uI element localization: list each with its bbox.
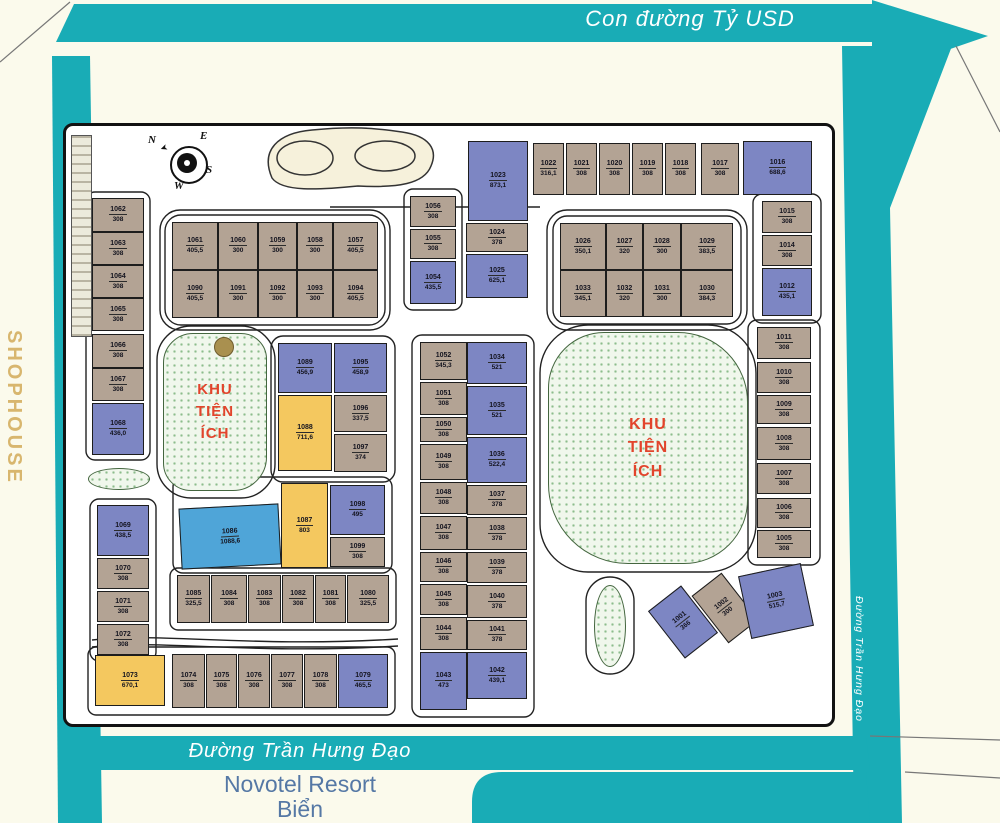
lot-number: 1030 — [698, 285, 716, 294]
lot-1025: 1025625,1 — [466, 254, 528, 298]
road-bottom-label: Đường Trần Hưng Đạo — [130, 740, 470, 763]
park-left: KHUTIỆNÍCH — [163, 333, 267, 491]
road-top-label: Con đường Tỷ USD — [560, 6, 820, 32]
lot-1036: 1036522,4 — [467, 437, 527, 483]
lot-number: 1066 — [109, 342, 127, 351]
novotel-resort-label: Novotel Resort Biển — [130, 772, 470, 823]
lot-1041: 1041378 — [467, 620, 527, 650]
lot-1032: 1032320 — [606, 270, 643, 317]
lot-area: 688,6 — [769, 169, 785, 176]
lot-number: 1094 — [347, 285, 365, 294]
lot-area: 405,5 — [347, 295, 363, 302]
lot-number: 1073 — [121, 672, 139, 681]
lot-area: 300 — [310, 247, 321, 254]
lot-area: 378 — [492, 569, 503, 576]
lot-number: 1075 — [213, 672, 231, 681]
lot-area: 405,5 — [347, 247, 363, 254]
lot-1051: 1051308 — [420, 382, 467, 415]
lot-number: 1049 — [435, 453, 453, 462]
lot-number: 1078 — [312, 672, 330, 681]
lot-number: 1027 — [616, 238, 634, 247]
lot-area: 458,9 — [352, 369, 368, 376]
lot-number: 1045 — [435, 591, 453, 600]
lot-area: 308 — [438, 499, 449, 506]
lot-area: 405,5 — [187, 247, 203, 254]
lot-1027: 1027320 — [606, 223, 643, 270]
lot-1018: 1018308 — [665, 143, 696, 195]
lot-area: 378 — [492, 636, 503, 643]
lot-area: 522,4 — [489, 461, 505, 468]
lot-1089: 1089456,9 — [278, 343, 332, 393]
lot-area: 300 — [272, 247, 283, 254]
lot-area: 300 — [310, 295, 321, 302]
lot-number: 1089 — [296, 359, 314, 368]
lot-area: 300 — [233, 247, 244, 254]
lot-number: 1048 — [435, 489, 453, 498]
lot-1070: 1070308 — [97, 558, 149, 589]
lot-number: 1052 — [435, 352, 453, 361]
lot-number: 1050 — [435, 421, 453, 430]
lot-number: 1005 — [775, 535, 793, 544]
lot-number: 1023 — [489, 172, 507, 181]
lot-number: 1071 — [114, 598, 132, 607]
lot-1063: 1063308 — [92, 232, 144, 265]
lot-area: 308 — [113, 386, 124, 393]
lot-number: 1042 — [488, 667, 506, 676]
lot-1087: 1087803 — [281, 483, 328, 568]
lot-area: 473 — [438, 682, 449, 689]
lot-number: 1024 — [488, 229, 506, 238]
lot-number: 1029 — [698, 238, 716, 247]
lot-area: 308 — [216, 682, 227, 689]
lot-number: 1081 — [322, 590, 340, 599]
lot-area: 350,1 — [575, 248, 591, 255]
lot-1086: 10861088,6 — [178, 503, 281, 569]
lot-1024: 1024378 — [466, 223, 528, 252]
lot-area: 374 — [355, 454, 366, 461]
lot-1009: 1009308 — [757, 395, 811, 424]
lot-1028: 1028300 — [643, 223, 681, 270]
lot-area: 384,3 — [699, 295, 715, 302]
lot-1097: 1097374 — [334, 434, 387, 472]
lot-1096: 1096337,5 — [334, 395, 387, 432]
lot-1008: 1008308 — [757, 427, 811, 460]
lot-number: 1087 — [296, 517, 314, 526]
lot-area: 308 — [438, 534, 449, 541]
lot-number: 1033 — [574, 285, 592, 294]
lot-area: 308 — [779, 411, 790, 418]
lot-number: 1009 — [775, 401, 793, 410]
lot-1035: 1035521 — [467, 386, 527, 435]
lot-number: 1063 — [109, 240, 127, 249]
lot-number: 1039 — [488, 559, 506, 568]
lot-number: 1098 — [349, 501, 367, 510]
lot-number: 1043 — [435, 672, 453, 681]
lot-number: 1014 — [778, 242, 796, 251]
lot-1043: 1043473 — [420, 652, 467, 710]
lot-number: 1032 — [616, 285, 634, 294]
lot-area: 438,5 — [115, 532, 131, 539]
lot-number: 1028 — [653, 238, 671, 247]
lot-1094: 1094405,5 — [333, 270, 378, 318]
lot-1067: 1067308 — [92, 368, 144, 401]
lot-1045: 1045308 — [420, 584, 467, 615]
pond-inner — [355, 141, 415, 171]
lot-1054: 1054435,5 — [410, 261, 456, 304]
park-right-label: KHUTIỆNÍCH — [628, 413, 668, 483]
lot-area: 436,0 — [110, 430, 126, 437]
lot-1069: 1069438,5 — [97, 505, 149, 556]
lot-area: 308 — [113, 316, 124, 323]
lot-area: 300 — [272, 295, 283, 302]
park-right: KHUTIỆNÍCH — [548, 332, 748, 564]
lot-1083: 1083308 — [248, 575, 281, 623]
lot-1077: 1077308 — [271, 654, 303, 708]
lot-1085: 1085325,5 — [177, 575, 210, 623]
lot-1093: 1093300 — [297, 270, 333, 318]
lot-1017: 1017308 — [701, 143, 739, 195]
lot-1007: 1007308 — [757, 463, 811, 494]
lot-area: 308 — [438, 431, 449, 438]
lot-number: 1044 — [435, 625, 453, 634]
lot-area: 308 — [428, 213, 439, 220]
lot-number: 1083 — [256, 590, 274, 599]
lot-1044: 1044308 — [420, 617, 467, 650]
lot-1080: 1080325,5 — [347, 575, 389, 623]
wall-strip — [71, 135, 92, 337]
compass-icon: ➤ N E S W — [160, 138, 216, 194]
lot-1037: 1037378 — [467, 485, 527, 515]
lot-area: 308 — [325, 600, 336, 607]
lot-area: 308 — [782, 218, 793, 225]
lot-1055: 1055308 — [410, 229, 456, 259]
lot-area: 308 — [438, 463, 449, 470]
lot-number: 1006 — [775, 504, 793, 513]
lot-1092: 1092300 — [258, 270, 297, 318]
lot-1012: 1012435,1 — [762, 268, 812, 316]
lot-area: 521 — [492, 364, 503, 371]
lot-1068: 1068436,0 — [92, 403, 144, 455]
lot-1075: 1075308 — [206, 654, 237, 708]
lot-1050: 1050308 — [420, 417, 467, 442]
lot-number: 1095 — [352, 359, 370, 368]
lot-area: 300 — [657, 295, 668, 302]
lot-1046: 1046308 — [420, 552, 467, 582]
lot-number: 1062 — [109, 206, 127, 215]
lot-area: 308 — [282, 682, 293, 689]
road-right-label: Đường Trần Hưng Đạo — [853, 596, 865, 781]
lot-number: 1065 — [109, 306, 127, 315]
lot-1090: 1090405,5 — [172, 270, 218, 318]
lot-1076: 1076308 — [238, 654, 270, 708]
lot-1015: 1015308 — [762, 201, 812, 233]
lot-1084: 1084308 — [211, 575, 247, 623]
lot-area: 308 — [259, 600, 270, 607]
lot-1062: 1062308 — [92, 198, 144, 232]
lot-area: 378 — [492, 603, 503, 610]
lot-area: 439,1 — [489, 677, 505, 684]
lot-number: 1008 — [775, 435, 793, 444]
lot-number: 1069 — [114, 522, 132, 531]
lot-number: 1012 — [778, 283, 796, 292]
lot-area: 308 — [782, 252, 793, 259]
lot-1091: 1091300 — [218, 270, 258, 318]
lot-area: 308 — [609, 170, 620, 177]
lot-1040: 1040378 — [467, 585, 527, 618]
compass-e: E — [200, 130, 207, 142]
lot-1048: 1048308 — [420, 482, 467, 514]
lot-number: 1010 — [775, 369, 793, 378]
lot-area: 325,5 — [360, 600, 376, 607]
lot-1057: 1057405,5 — [333, 222, 378, 270]
lot-area: 378 — [492, 501, 503, 508]
lot-1022: 1022316,1 — [533, 143, 564, 195]
lot-number: 1036 — [488, 451, 506, 460]
lot-area: 308 — [113, 352, 124, 359]
lot-number: 1007 — [775, 470, 793, 479]
park-left-label: KHUTIỆNÍCH — [196, 379, 234, 444]
lot-number: 1041 — [488, 626, 506, 635]
lot-number: 1021 — [573, 160, 591, 169]
lot-1023: 1023873,1 — [468, 141, 528, 221]
lot-1014: 1014308 — [762, 235, 812, 266]
lot-area: 308 — [779, 480, 790, 487]
lot-1021: 1021308 — [566, 143, 597, 195]
lot-area: 308 — [779, 379, 790, 386]
lot-number: 1092 — [269, 285, 287, 294]
lot-1074: 1074308 — [172, 654, 205, 708]
lot-area: 308 — [779, 514, 790, 521]
lot-1058: 1058300 — [297, 222, 333, 270]
lot-1038: 1038378 — [467, 517, 527, 550]
lot-1056: 1056308 — [410, 196, 456, 227]
lot-number: 1017 — [711, 160, 729, 169]
lot-number: 1082 — [289, 590, 307, 599]
lot-1049: 1049308 — [420, 444, 467, 480]
lot-area: 345,3 — [435, 362, 451, 369]
lot-area: 308 — [675, 170, 686, 177]
lot-area: 521 — [492, 412, 503, 419]
lot-area: 308 — [224, 600, 235, 607]
lot-number: 1090 — [186, 285, 204, 294]
lot-number: 1084 — [220, 590, 238, 599]
lot-number: 1093 — [306, 285, 324, 294]
lot-area: 308 — [779, 545, 790, 552]
lot-number: 1079 — [354, 672, 372, 681]
lot-area: 308 — [118, 575, 129, 582]
lot-1020: 1020308 — [599, 143, 630, 195]
lot-number: 1076 — [245, 672, 263, 681]
lot-number: 1061 — [186, 237, 204, 246]
lot-1019: 1019308 — [632, 143, 663, 195]
lot-number: 1091 — [229, 285, 247, 294]
lot-area: 308 — [113, 216, 124, 223]
lot-number: 1072 — [114, 631, 132, 640]
lot-number: 1099 — [349, 543, 367, 552]
lot-area: 308 — [352, 553, 363, 560]
lot-number: 1022 — [540, 160, 558, 169]
lot-number: 1037 — [488, 491, 506, 500]
lot-area: 308 — [183, 682, 194, 689]
lot-area: 308 — [249, 682, 260, 689]
lot-number: 1067 — [109, 376, 127, 385]
lot-area: 308 — [118, 641, 129, 648]
lot-area: 300 — [657, 248, 668, 255]
lot-1006: 1006308 — [757, 498, 811, 528]
lot-area: 383,5 — [699, 248, 715, 255]
lot-1033: 1033345,1 — [560, 270, 606, 317]
lot-number: 1074 — [180, 672, 198, 681]
lot-area: 308 — [428, 245, 439, 252]
lot-number: 1086 — [221, 527, 239, 537]
masterplan-map: KHUTIỆNÍCH KHUTIỆNÍCH ➤ N E S W 10623081… — [0, 0, 1000, 823]
lot-area: 308 — [779, 344, 790, 351]
lot-1059: 1059300 — [258, 222, 297, 270]
lot-1052: 1052345,3 — [420, 342, 467, 380]
lot-area: 316,1 — [540, 170, 556, 177]
compass-w: W — [174, 180, 184, 192]
lot-area: 345,1 — [575, 295, 591, 302]
lot-number: 1058 — [306, 237, 324, 246]
lot-area: 308 — [293, 600, 304, 607]
lot-area: 435,1 — [779, 293, 795, 300]
lot-area: 308 — [438, 635, 449, 642]
lot-area: 308 — [715, 170, 726, 177]
lot-number: 1096 — [352, 405, 370, 414]
lot-area: 320 — [619, 248, 630, 255]
lot-number: 1064 — [109, 273, 127, 282]
lot-area: 337,5 — [352, 415, 368, 422]
lot-1026: 1026350,1 — [560, 223, 606, 270]
lot-1065: 1065308 — [92, 298, 144, 331]
lot-number: 1034 — [488, 354, 506, 363]
lot-number: 1046 — [435, 558, 453, 567]
lot-1098: 1098495 — [330, 485, 385, 535]
lot-area: 308 — [113, 283, 124, 290]
lot-1029: 1029383,5 — [681, 223, 733, 270]
lot-1031: 1031300 — [643, 270, 681, 317]
lot-number: 1026 — [574, 238, 592, 247]
pond-inner — [277, 141, 333, 175]
lot-area: 308 — [438, 568, 449, 575]
lot-number: 1020 — [606, 160, 624, 169]
lot-area: 670,1 — [122, 682, 138, 689]
lot-1079: 1079465,5 — [338, 654, 388, 708]
lot-number: 1025 — [488, 267, 506, 276]
lot-number: 1057 — [347, 237, 365, 246]
lot-area: 308 — [438, 400, 449, 407]
park-oval — [594, 585, 626, 667]
lot-area: 1088,6 — [220, 537, 240, 545]
compass-s: S — [206, 164, 212, 176]
lot-number: 1038 — [488, 525, 506, 534]
lot-number: 1056 — [424, 203, 442, 212]
lot-area: 378 — [492, 239, 503, 246]
lot-area: 465,5 — [355, 682, 371, 689]
lot-area: 308 — [315, 682, 326, 689]
lot-1030: 1030384,3 — [681, 270, 733, 317]
lot-area: 873,1 — [490, 182, 506, 189]
lot-number: 1070 — [114, 565, 132, 574]
lot-area: 435,5 — [425, 284, 441, 291]
lot-1072: 1072308 — [97, 624, 149, 655]
lot-1061: 1061405,5 — [172, 222, 218, 270]
lot-1064: 1064308 — [92, 265, 144, 298]
lot-1042: 1042439,1 — [467, 652, 527, 699]
lot-area: 300 — [233, 295, 244, 302]
lot-1088: 1088711,6 — [278, 395, 332, 471]
lot-area: 495 — [352, 511, 363, 518]
lot-number: 1031 — [653, 285, 671, 294]
lot-area: 803 — [299, 527, 310, 534]
tree-icon — [214, 337, 234, 357]
lot-1039: 1039378 — [467, 552, 527, 583]
lot-1005: 1005308 — [757, 530, 811, 558]
lot-1034: 1034521 — [467, 342, 527, 384]
lot-1081: 1081308 — [315, 575, 346, 623]
lot-1016: 1016688,6 — [743, 141, 812, 195]
lot-number: 1077 — [278, 672, 296, 681]
lot-1078: 1078308 — [304, 654, 337, 708]
lot-number: 1016 — [769, 159, 787, 168]
lot-1071: 1071308 — [97, 591, 149, 622]
compass-n: N — [148, 134, 156, 146]
lot-number: 1059 — [269, 237, 287, 246]
compass-needle-icon: ➤ — [158, 141, 169, 154]
lot-number: 1051 — [435, 390, 453, 399]
lot-1060: 1060300 — [218, 222, 258, 270]
lot-area: 308 — [779, 445, 790, 452]
lot-number: 1040 — [488, 593, 506, 602]
lot-area: 378 — [492, 535, 503, 542]
lot-number: 1019 — [639, 160, 657, 169]
lot-number: 1080 — [359, 590, 377, 599]
lot-area: 320 — [619, 295, 630, 302]
lot-1082: 1082308 — [282, 575, 314, 623]
lot-area: 456,9 — [297, 369, 313, 376]
lot-1099: 1099308 — [330, 537, 385, 567]
lot-area: 711,6 — [297, 434, 313, 441]
lot-area: 308 — [113, 250, 124, 257]
lot-number: 1097 — [352, 444, 370, 453]
lot-area: 308 — [642, 170, 653, 177]
lot-1011: 1011308 — [757, 327, 811, 359]
lot-number: 1011 — [775, 334, 792, 343]
shophouse-label: SHOPHOUSE — [2, 330, 25, 540]
lot-number: 1088 — [296, 424, 314, 433]
lot-number: 1015 — [778, 208, 796, 217]
lot-number: 1035 — [488, 402, 506, 411]
lot-number: 1068 — [109, 420, 127, 429]
lot-area: 625,1 — [489, 277, 505, 284]
lot-number: 1055 — [424, 235, 442, 244]
lot-area: 308 — [118, 608, 129, 615]
lot-number: 1060 — [229, 237, 247, 246]
lot-1066: 1066308 — [92, 334, 144, 368]
lot-1095: 1095458,9 — [334, 343, 387, 393]
lot-number: 1085 — [185, 590, 203, 599]
lot-1047: 1047308 — [420, 516, 467, 550]
lot-area: 308 — [576, 170, 587, 177]
lot-1073: 1073670,1 — [95, 655, 165, 706]
lot-1010: 1010308 — [757, 362, 811, 393]
lot-number: 1047 — [435, 524, 453, 533]
lot-area: 308 — [438, 601, 449, 608]
lot-1003: 1003515,7 — [738, 563, 814, 639]
lot-number: 1018 — [672, 160, 690, 169]
lot-area: 405,5 — [187, 295, 203, 302]
traffic-island — [88, 468, 150, 490]
